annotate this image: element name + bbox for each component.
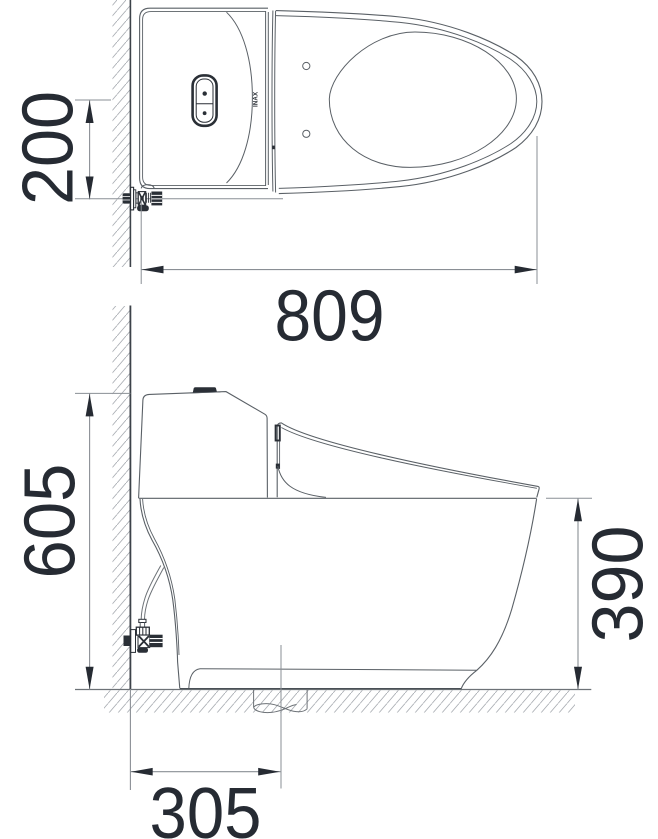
svg-text:390: 390 [578, 526, 658, 643]
svg-text:605: 605 [10, 464, 91, 579]
svg-text:INAX: INAX [253, 91, 260, 107]
svg-text:200: 200 [8, 91, 89, 205]
svg-text:305: 305 [150, 773, 262, 839]
svg-text:809: 809 [275, 276, 385, 357]
